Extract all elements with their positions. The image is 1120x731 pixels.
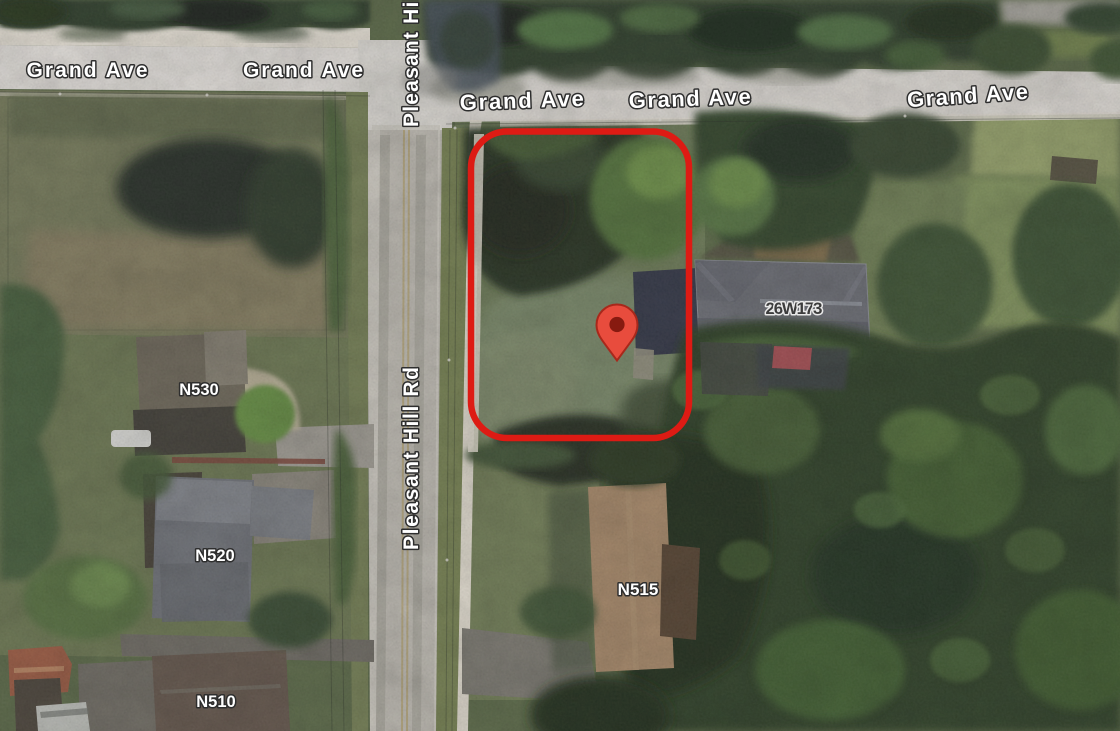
svg-text:Grand Ave: Grand Ave — [459, 86, 584, 115]
svg-text:N515: N515 — [618, 580, 659, 599]
svg-text:Grand Ave: Grand Ave — [243, 59, 363, 82]
svg-text:N520: N520 — [195, 547, 234, 565]
svg-text:Grand Ave: Grand Ave — [27, 59, 148, 82]
svg-text:N530: N530 — [179, 381, 218, 399]
svg-text:Grand Ave: Grand Ave — [628, 84, 751, 113]
svg-text:Pleasant Hill Rd: Pleasant Hill Rd — [400, 0, 423, 127]
svg-text:Pleasant Hill Rd: Pleasant Hill Rd — [400, 367, 423, 550]
svg-text:26W173: 26W173 — [766, 299, 823, 318]
svg-text:N510: N510 — [196, 693, 235, 711]
